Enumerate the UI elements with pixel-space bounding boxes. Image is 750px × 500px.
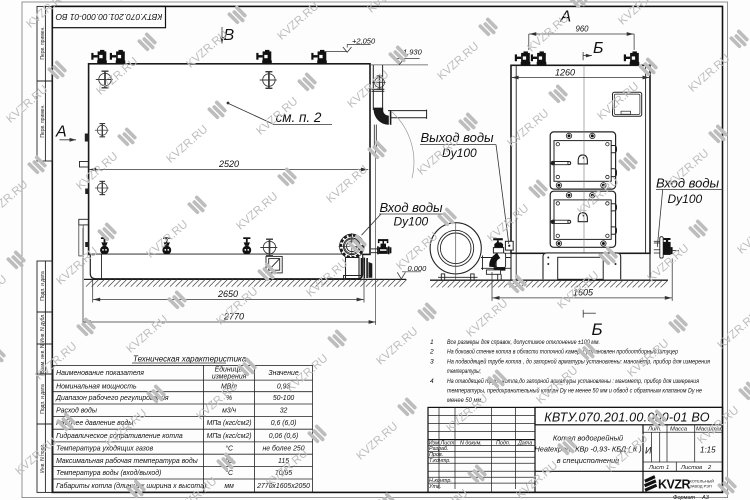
svg-text:Температура воды (вход/выход): Температура воды (вход/выход): [56, 469, 161, 477]
svg-text:Температура уходящих газов: Температура уходящих газов: [56, 444, 154, 452]
svg-text:мм: мм: [224, 483, 234, 490]
svg-text:На подводящей трубе котла ,: На подводящей трубе котла , до запорной …: [447, 357, 710, 365]
svg-text:Номинальная мощность: Номинальная мощность: [56, 383, 137, 390]
svg-text:ЗАВОД РЭП: ЗАВОД РЭП: [690, 484, 712, 489]
svg-text:Котел водогрейный: Котел водогрейный: [553, 434, 623, 443]
svg-text:И: И: [645, 446, 652, 456]
svg-text:КВТУ.070.201.00.000-01 ВО: КВТУ.070.201.00.000-01 ВО: [55, 12, 162, 22]
svg-text:2: 2: [429, 349, 434, 356]
svg-text:°С: °С: [225, 444, 234, 452]
svg-text:Утв.: Утв.: [428, 484, 441, 490]
svg-text:KVZR: KVZR: [658, 478, 691, 492]
svg-text:Вход воды: Вход воды: [656, 176, 720, 191]
svg-text:Подп.: Подп.: [496, 440, 510, 446]
svg-text:МПа (кгс/см2): МПа (кгс/см2): [207, 433, 252, 440]
svg-text:Dy100: Dy100: [668, 192, 703, 206]
svg-text:Техническая характеристика: Техническая характеристика: [133, 355, 247, 364]
svg-text:2520: 2520: [218, 159, 239, 169]
svg-text:Подп. и дата: Подп. и дата: [40, 384, 46, 414]
svg-text:Б: Б: [593, 40, 603, 57]
svg-text:Изм.: Изм.: [429, 440, 441, 446]
svg-text:Все размеры для справок, допус: Все размеры для справок, допустимое откл…: [447, 338, 600, 346]
svg-text:4: 4: [430, 378, 434, 385]
svg-text:50-100: 50-100: [273, 395, 295, 402]
svg-text:3: 3: [430, 358, 434, 365]
svg-text:КВТУ.070.201.00.000-01 ВО: КВТУ.070.201.00.000-01 ВО: [544, 410, 709, 424]
svg-text:2650: 2650: [217, 289, 238, 299]
svg-text:32: 32: [280, 408, 288, 415]
svg-text:N докум.: N докум.: [460, 440, 482, 446]
svg-text:измерения: измерения: [212, 374, 247, 381]
svg-text:Максимальная рабочая температу: Максимальная рабочая температура воды: [56, 457, 198, 465]
svg-text:0,6 (6,0): 0,6 (6,0): [271, 420, 297, 427]
svg-text:2770х1605х2050: 2770х1605х2050: [256, 483, 310, 490]
svg-text:Dy100: Dy100: [394, 215, 429, 229]
svg-text:А3: А3: [701, 495, 710, 500]
svg-text:Б: Б: [592, 320, 603, 339]
svg-text:1: 1: [666, 465, 669, 471]
svg-text:температуры;: температуры;: [447, 368, 481, 375]
svg-text:Формат: Формат: [673, 495, 696, 500]
svg-text:Лист: Лист: [648, 465, 664, 471]
svg-text:А: А: [55, 124, 67, 141]
svg-text:Перв. примен.: Перв. примен.: [40, 26, 46, 59]
svg-text:Масса: Масса: [670, 426, 688, 432]
svg-text:Расход воды: Расход воды: [56, 407, 97, 415]
svg-text:Т.контр.: Т.контр.: [429, 458, 451, 464]
svg-text:960: 960: [575, 25, 589, 34]
svg-text:0,06 (0,6): 0,06 (0,6): [269, 433, 299, 440]
svg-text:Лит.: Лит.: [647, 426, 662, 432]
svg-text:1260: 1260: [555, 67, 575, 77]
svg-text:Подп. и дата: Подп. и дата: [40, 271, 46, 301]
svg-text:1: 1: [430, 339, 434, 346]
svg-text:Перв. примен.: Перв. примен.: [40, 104, 46, 137]
svg-text:м3/ч: м3/ч: [222, 408, 236, 415]
svg-text:Листов: Листов: [680, 465, 702, 471]
svg-text:температуры, предохранительный: температуры, предохранительный клапан Dy…: [447, 387, 702, 395]
svg-text:Лист: Лист: [440, 440, 455, 446]
svg-text:Инв. N дубл.: Инв. N дубл.: [40, 313, 46, 342]
svg-text:МПа (кгс/см2): МПа (кгс/см2): [207, 420, 252, 427]
svg-text:Наименование показателя: Наименование показателя: [56, 370, 144, 377]
svg-text:Вход воды: Вход воды: [380, 200, 444, 215]
svg-text:Дата: Дата: [517, 440, 532, 446]
